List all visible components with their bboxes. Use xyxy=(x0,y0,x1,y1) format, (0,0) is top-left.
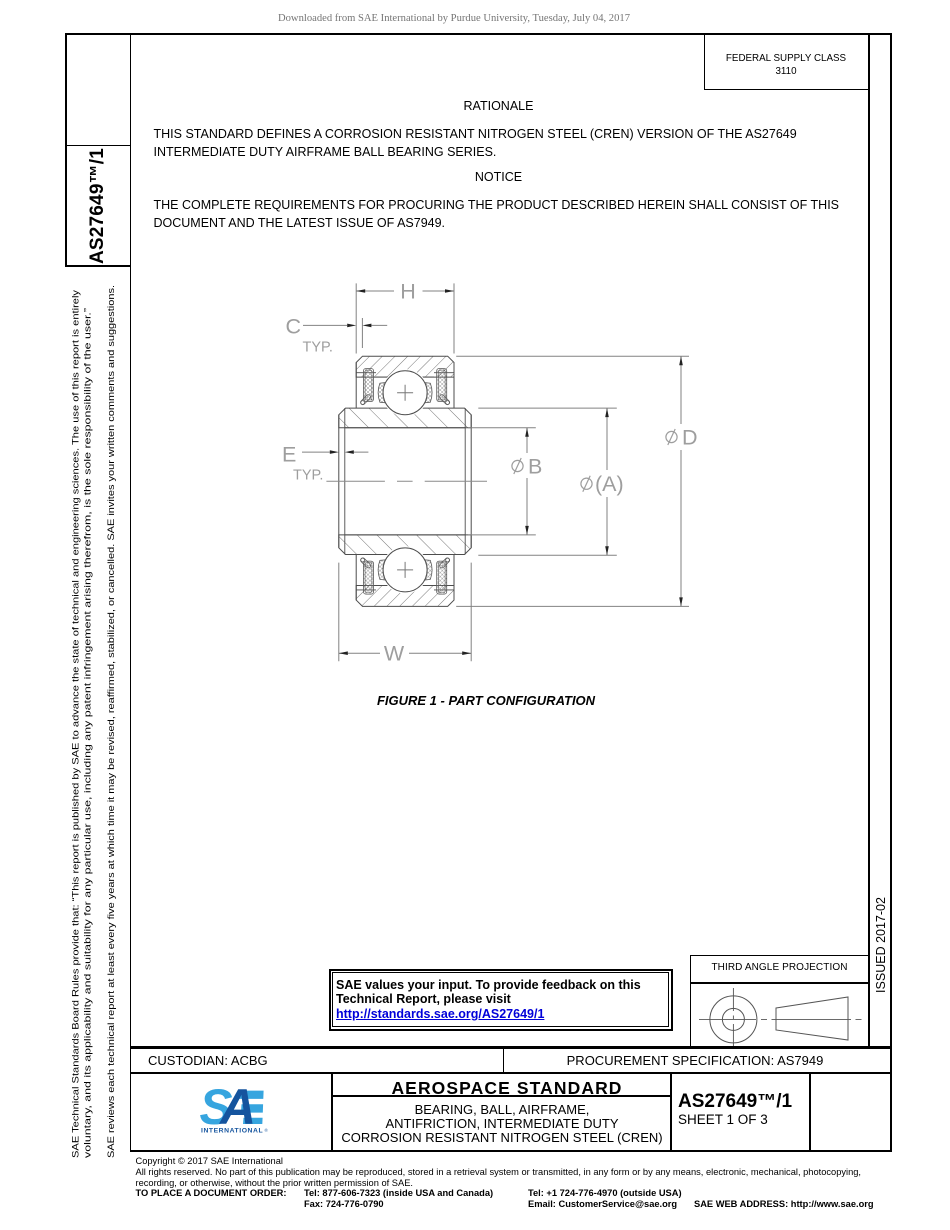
svg-text:SAE Technical Standards Board: SAE Technical Standards Board Rules prov… xyxy=(71,290,82,1158)
svg-text:SAE reviews each technical rep: SAE reviews each technical report at lea… xyxy=(106,285,117,1158)
svg-text:voluntary, and its applicabili: voluntary, and its applicability and sui… xyxy=(83,308,94,1158)
